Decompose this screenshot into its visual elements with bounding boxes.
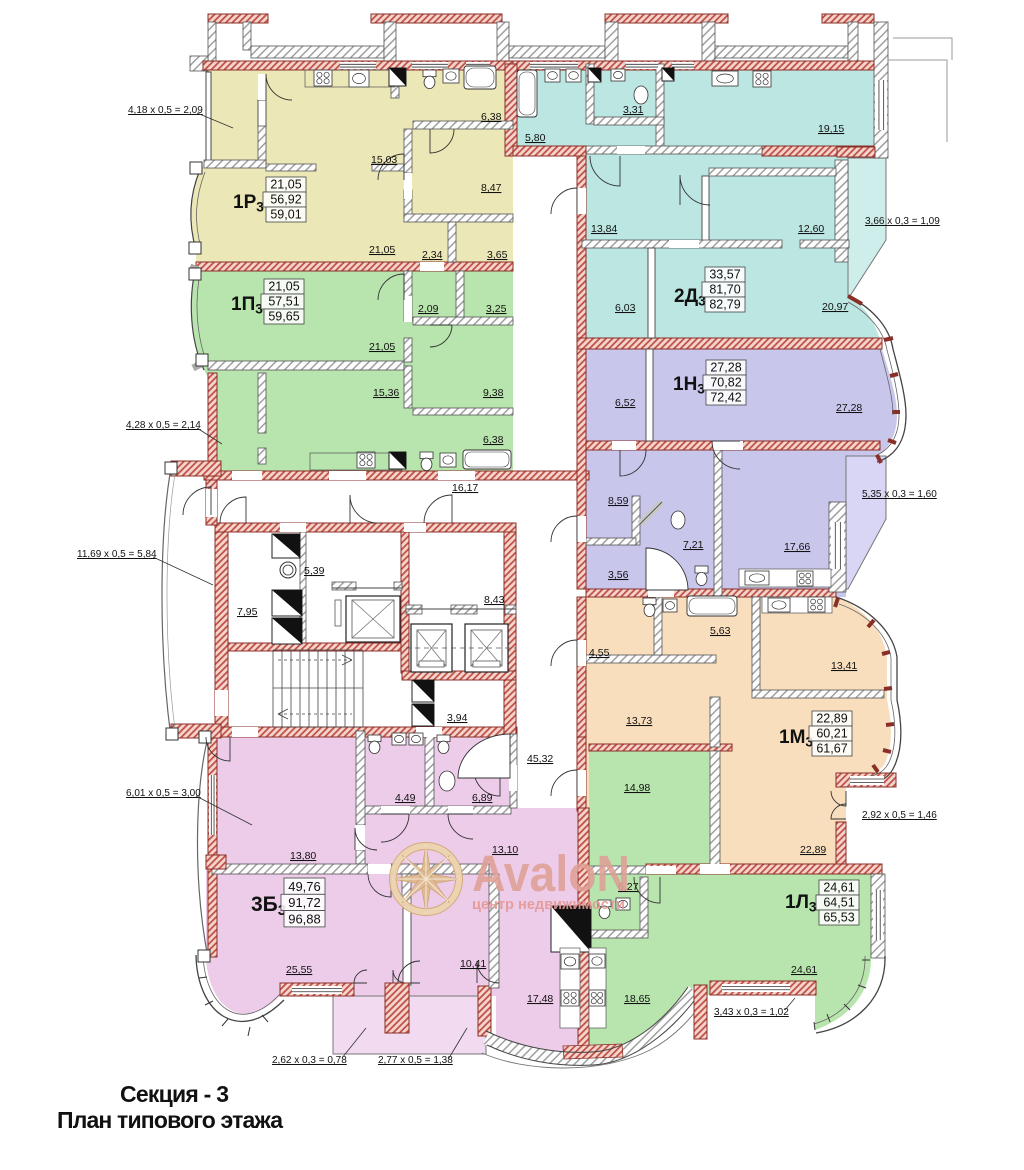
svg-text:21,05: 21,05 bbox=[369, 341, 395, 353]
svg-text:60,21: 60,21 bbox=[816, 727, 847, 741]
svg-text:19,15: 19,15 bbox=[818, 123, 844, 135]
svg-text:18,65: 18,65 bbox=[624, 993, 650, 1005]
svg-text:8,59: 8,59 bbox=[608, 495, 629, 507]
svg-text:59,01: 59,01 bbox=[270, 208, 301, 222]
svg-text:6,52: 6,52 bbox=[615, 397, 636, 409]
svg-text:3,43 х 0,3 = 1,02: 3,43 х 0,3 = 1,02 bbox=[714, 1007, 789, 1018]
svg-text:22,89: 22,89 bbox=[816, 712, 847, 726]
svg-text:7,95: 7,95 bbox=[237, 606, 258, 618]
svg-text:2,34: 2,34 bbox=[422, 249, 443, 261]
svg-text:7,21: 7,21 bbox=[683, 539, 704, 551]
svg-text:15,03: 15,03 bbox=[371, 154, 397, 166]
svg-text:6,01 х 0,5 = 3,00: 6,01 х 0,5 = 3,00 bbox=[126, 788, 201, 799]
svg-text:21,05: 21,05 bbox=[369, 244, 395, 256]
svg-text:4,49: 4,49 bbox=[395, 792, 416, 804]
svg-text:4,55: 4,55 bbox=[589, 647, 610, 659]
svg-text:2,62 х 0,3 = 0,78: 2,62 х 0,3 = 0,78 bbox=[272, 1055, 347, 1066]
svg-text:5,63: 5,63 bbox=[710, 625, 731, 637]
svg-text:5,39: 5,39 bbox=[304, 565, 325, 577]
svg-text:82,79: 82,79 bbox=[709, 298, 740, 312]
svg-text:13,41: 13,41 bbox=[831, 660, 857, 672]
svg-text:6,03: 6,03 bbox=[615, 302, 636, 314]
svg-text:72,42: 72,42 bbox=[710, 391, 741, 405]
svg-text:8,47: 8,47 bbox=[481, 182, 502, 194]
svg-text:15,36: 15,36 bbox=[373, 387, 399, 399]
svg-text:21,05: 21,05 bbox=[268, 280, 299, 294]
svg-text:3,25: 3,25 bbox=[486, 303, 507, 315]
svg-text:13,80: 13,80 bbox=[290, 850, 316, 862]
svg-text:14,98: 14,98 bbox=[624, 782, 650, 794]
svg-text:24,61: 24,61 bbox=[791, 964, 817, 976]
svg-text:10,41: 10,41 bbox=[460, 958, 486, 970]
svg-text:3,66 х 0,3 = 1,09: 3,66 х 0,3 = 1,09 bbox=[865, 216, 940, 227]
svg-text:61,67: 61,67 bbox=[816, 742, 847, 756]
svg-text:5,35 х 0,3 = 1,60: 5,35 х 0,3 = 1,60 bbox=[862, 489, 937, 500]
svg-text:6,38: 6,38 bbox=[481, 111, 502, 123]
svg-text:27,28: 27,28 bbox=[836, 402, 862, 414]
svg-text:11,69 х 0,5 = 5,84: 11,69 х 0,5 = 5,84 bbox=[77, 549, 157, 560]
svg-text:49,76: 49,76 bbox=[288, 879, 321, 894]
svg-text:3,65: 3,65 bbox=[487, 249, 508, 261]
svg-text:3,56: 3,56 bbox=[608, 569, 629, 581]
svg-text:2,77 х 0,5 = 1,38: 2,77 х 0,5 = 1,38 bbox=[378, 1055, 453, 1066]
svg-text:25,55: 25,55 bbox=[286, 964, 312, 976]
svg-text:центр недвижимости: центр недвижимости bbox=[472, 897, 625, 913]
svg-text:56,92: 56,92 bbox=[270, 193, 301, 207]
svg-text:9,38: 9,38 bbox=[483, 387, 504, 399]
svg-text:16,17: 16,17 bbox=[452, 482, 478, 494]
svg-text:20,97: 20,97 bbox=[822, 301, 848, 313]
svg-text:12,60: 12,60 bbox=[798, 223, 824, 235]
svg-text:6,38: 6,38 bbox=[483, 434, 504, 446]
svg-text:5,80: 5,80 bbox=[525, 132, 546, 144]
svg-text:64,51: 64,51 bbox=[823, 896, 854, 910]
svg-text:45,32: 45,32 bbox=[527, 753, 553, 765]
svg-text:24,61: 24,61 bbox=[823, 881, 854, 895]
svg-text:Секция - 3: Секция - 3 bbox=[120, 1081, 229, 1107]
svg-text:17,66: 17,66 bbox=[784, 541, 810, 553]
svg-text:6,89: 6,89 bbox=[472, 792, 493, 804]
svg-text:81,70: 81,70 bbox=[709, 283, 740, 297]
svg-text:13,73: 13,73 bbox=[626, 715, 652, 727]
svg-text:59,65: 59,65 bbox=[268, 310, 299, 324]
svg-text:22,89: 22,89 bbox=[800, 844, 826, 856]
svg-text:65,53: 65,53 bbox=[823, 911, 854, 925]
svg-text:4,18 х 0,5 = 2,09: 4,18 х 0,5 = 2,09 bbox=[128, 105, 203, 116]
svg-text:3,94: 3,94 bbox=[447, 712, 468, 724]
svg-text:91,72: 91,72 bbox=[288, 895, 321, 910]
svg-text:21,05: 21,05 bbox=[270, 178, 301, 192]
svg-text:13,84: 13,84 bbox=[591, 223, 617, 235]
svg-text:План типового этажа: План типового этажа bbox=[57, 1107, 283, 1133]
svg-text:3,31: 3,31 bbox=[623, 104, 644, 116]
svg-text:2,92 х 0,5 = 1,46: 2,92 х 0,5 = 1,46 bbox=[862, 810, 937, 821]
svg-text:17,48: 17,48 bbox=[527, 993, 553, 1005]
svg-text:70,82: 70,82 bbox=[710, 376, 741, 390]
svg-text:8,43: 8,43 bbox=[484, 594, 505, 606]
svg-text:57,51: 57,51 bbox=[268, 295, 299, 309]
svg-text:AvaloN: AvaloN bbox=[472, 845, 630, 902]
svg-text:33,57: 33,57 bbox=[709, 268, 740, 282]
svg-text:27,28: 27,28 bbox=[710, 361, 741, 375]
svg-text:96,88: 96,88 bbox=[288, 911, 321, 926]
svg-text:2,09: 2,09 bbox=[418, 303, 439, 315]
svg-text:4,28 х 0,5 = 2,14: 4,28 х 0,5 = 2,14 bbox=[126, 420, 201, 431]
